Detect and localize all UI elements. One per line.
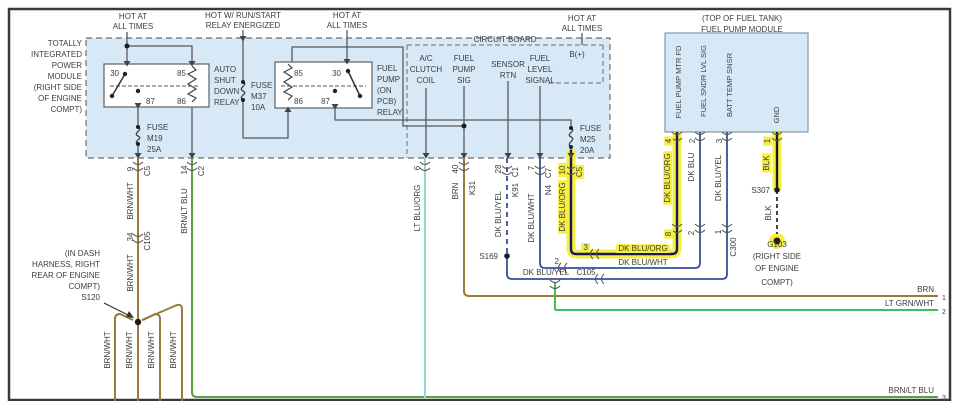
wire-brn-v-label: BRN [451,182,460,199]
asd-pin-86-label: 86 [177,97,186,106]
fp-sw-dot1 [346,69,350,73]
fuse-m19-2-label: M19 [147,134,163,143]
c105-pin-3-label: 3 [584,243,589,252]
fuel-pump-module-caption-a-label: (TOP OF FUEL TANK) [702,14,782,23]
wire-dk-blu-org-v2-label: DK BLU/ORG [663,153,672,202]
c300-pin-8-label: 8 [664,231,673,236]
asd-pin-30-label: 30 [110,69,119,78]
fp-relay-pin-85-label: 85 [294,69,303,78]
g103-label-label: G103 [767,240,787,249]
fuse-m25-2-label: M25 [580,135,596,144]
fpm-pin-name-2-label: FUEL SNDR LVL SIG [699,45,708,117]
fuse-m25-3-label: 20A [580,146,595,155]
fuse-m25-dot2 [569,145,573,149]
pin-right-2-label: 2 [942,309,946,316]
cb-fuel-pump-sig-3-label: SIG [457,76,471,85]
s307-splice [774,187,780,193]
conn-c7-label: C7 [544,167,553,178]
hot-at-2a-label: HOT AT [333,11,361,20]
wire-blk-2-label: BLK [764,205,773,221]
fuse-m25-dot1 [569,126,573,130]
fuse-m37-3-label: 10A [251,103,266,112]
wire-lt-grn-wht-right-label: LT GRN/WHT [885,299,934,308]
fuel-pump-module-caption-b-label: FUEL PUMP MODULE [701,25,783,34]
tipm-caption-4-label: MODULE [48,72,82,81]
c105-pin-2-label: 2 [555,257,560,266]
s120-caption-4-label: COMPT) [68,282,100,291]
hot-at-2b-label: ALL TIMES [327,21,367,30]
c300-pin-2-label: 2 [687,230,696,235]
conn-c300-label: C300 [729,237,738,257]
fuse-m19-dot1 [136,125,140,129]
conn-c2-label: C2 [197,165,206,176]
pin-7-label: 7 [527,165,536,170]
g103-caption-3-label: COMPT) [761,278,793,287]
pin-right-3-label: 3 [942,395,946,401]
asd-pin-85-label: 85 [177,69,186,78]
hot-at-3b-label: ALL TIMES [562,24,602,33]
tipm-caption-2-label: INTEGRATED [31,50,82,59]
pin-10-label: 10 [558,165,567,174]
fp-sig-junction [462,124,467,129]
wire-brn-lt-blu-v-label: BRN/LT BLU [180,188,189,234]
fp-relay-pin-30-label: 30 [332,69,341,78]
asd-relay-caption-1-label: AUTO [214,65,236,74]
s169-label-label: S169 [479,252,498,261]
s307-label-label: S307 [751,186,770,195]
cb-ac-clutch-2-label: CLUTCH [410,65,443,74]
cb-fuel-level-2-label: LEVEL [528,65,553,74]
asd-87-dot [136,89,140,93]
hot-at-3a-label: HOT AT [568,14,596,23]
asd-pin-87-label: 87 [146,97,155,106]
fuse-m19-1-label: FUSE [147,123,168,132]
fuse-m19-dot2 [136,142,140,146]
tipm-caption-6-label: OF ENGINE [38,94,82,103]
fuse-m37-dot1 [241,80,245,84]
asd-sw-dot1 [123,72,127,76]
fuel-pump-module-box [665,33,808,132]
asd-relay [104,64,209,107]
wire-blk-1-label: BLK [762,155,771,171]
pin-right-1-label: 1 [942,295,946,302]
fuel-pump-wiring-diagram: HOT ATALL TIMESHOT W/ RUN/STARTRELAY ENE… [0,0,969,401]
wire-brn-wht-s4-label: BRN/WHT [169,331,178,368]
cb-ac-clutch-1-label: A/C [419,54,433,63]
s120-caption-3-label: REAR OF ENGINE [32,271,100,280]
pin-28-label: 28 [494,164,503,173]
asd-relay-caption-3-label: DOWN [214,87,240,96]
wire-dk-blu-org-v1-label: DK BLU/ORG [558,182,567,231]
fuse-m25-1-label: FUSE [580,124,601,133]
asd-relay-caption-2-label: SHUT [214,76,236,85]
wire-brn-wht-1-label: BRN/WHT [126,182,135,219]
fuse-m19-3-label: 25A [147,145,162,154]
pin-6-label: 6 [413,165,422,170]
fp-relay-caption-2-label: PUMP [377,75,400,84]
cb-b-plus-label: B(+) [569,50,585,59]
conn-n4-label: N4 [544,184,553,195]
hot1-junction [125,44,130,49]
pin-9-label: 9 [126,166,135,171]
cb-fuel-pump-sig-2-label: PUMP [452,65,475,74]
conn-c5-fp-label: C5 [575,166,584,177]
fpm-pin-name-1-label: FUEL PUMP MTR FD [674,45,683,119]
asd-relay-caption-4-label: RELAY [214,98,240,107]
conn-k91-label: K91 [511,182,520,197]
fp-relay-caption-3-label: (ON [377,86,392,95]
fpm-pin-3-label: 3 [715,138,724,143]
wire-dk-blu-yel-h-label: DK BLU/YEL [523,268,570,277]
fp-relay-caption-1-label: FUEL [377,64,398,73]
fp-relay-pin-86-label: 86 [294,97,303,106]
wire-dk-blu-yel-v2-label: DK BLU/YEL [714,154,723,201]
wire-brn-lt-blu-right-label: BRN/LT BLU [889,386,935,395]
conn-c105-h-label: C105 [576,268,596,277]
wire-brn-right-label: BRN [917,285,934,294]
conn-c5-asd-label: C5 [143,165,152,176]
s120-caption-2-label: HARNESS, RIGHT [32,260,100,269]
wire-brn-wht-s1-label: BRN/WHT [103,331,112,368]
fpm-pin-name-3-label: BATT TEMP SNSR [725,52,734,117]
pin-14-label: 14 [180,165,189,174]
wiring-diagram-page: { "title": "Fuel Pump Module Wiring Diag… [0,0,969,401]
fp-relay-pin-87-label: 87 [321,97,330,106]
pin-34-label: 34 [126,232,135,241]
fpm-pin-2-label: 2 [688,138,697,143]
fp-relay-caption-4-label: PCB) [377,97,396,106]
tipm-caption-1-label: TOTALLY [48,39,83,48]
wire-dk-blu-v-label: DK BLU [687,152,696,181]
circuit-board-caption-label: CIRCUIT BOARD [474,35,537,44]
wire-brn-wht-s2-label: BRN/WHT [125,331,134,368]
wire-dk-blu-org-h-label: DK BLU/ORG [618,244,667,253]
wire-brn-wht-s3-label: BRN/WHT [147,331,156,368]
c300-pin-1-label: 1 [714,229,723,234]
s120-caption-1-label: (IN DASH [65,249,100,258]
fpm-pin-1-label: 1 [763,138,772,143]
fpm-pin-4-label: 4 [664,138,673,143]
wire-brn-wht-2-label: BRN/WHT [126,254,135,291]
hot-run-start-a-label: HOT W/ RUN/START [205,11,281,20]
wire-dk-blu-wht-v-label: DK BLU/WHT [527,193,536,242]
fpm-pin-name-4-label: GND [772,106,781,123]
wire-dk-blu-wht-h-label: DK BLU/WHT [618,258,667,267]
s120-splice [135,319,141,325]
s169-splice [504,253,510,259]
wire-lt-blu-org-v-label: LT BLU/ORG [413,185,422,232]
conn-c105-v-label: C105 [143,231,152,251]
g103-caption-1-label: (RIGHT SIDE [753,252,801,261]
tipm-caption-5-label: (RIGHT SIDE [34,83,82,92]
cb-sensor-rtn-2-label: RTN [500,71,517,80]
cb-sensor-rtn-1-label: SENSOR [491,60,525,69]
tipm-caption-7-label: COMPT) [50,105,82,114]
fp-relay-caption-5-label: RELAY [377,108,403,117]
wire-dk-blu-yel-v-label: DK BLU/YEL [494,190,503,237]
fp-87-dot [333,89,337,93]
hot-run-start-b-label: RELAY ENERGIZED [206,21,281,30]
conn-c1-label: C1 [511,166,520,177]
cb-ac-clutch-3-label: COIL [417,76,436,85]
g103-caption-2-label: OF ENGINE [755,264,799,273]
cb-fuel-level-3-label: SIGNAL [525,76,555,85]
cb-fuel-pump-sig-1-label: FUEL [454,54,475,63]
s120-label-label: S120 [81,293,100,302]
hot-at-1a-label: HOT AT [119,12,147,21]
cb-fuel-level-1-label: FUEL [530,54,551,63]
conn-k31-label: K31 [468,180,477,195]
fuse-m37-2-label: M37 [251,92,267,101]
fp-sw-dot2 [358,94,362,98]
fuse-m37-1-label: FUSE [251,81,272,90]
hot-at-1b-label: ALL TIMES [113,22,153,31]
tipm-caption-3-label: POWER [52,61,82,70]
pin-40-label: 40 [451,164,460,173]
fuse-m37-dot2 [241,98,245,102]
asd-sw-dot2 [110,94,114,98]
